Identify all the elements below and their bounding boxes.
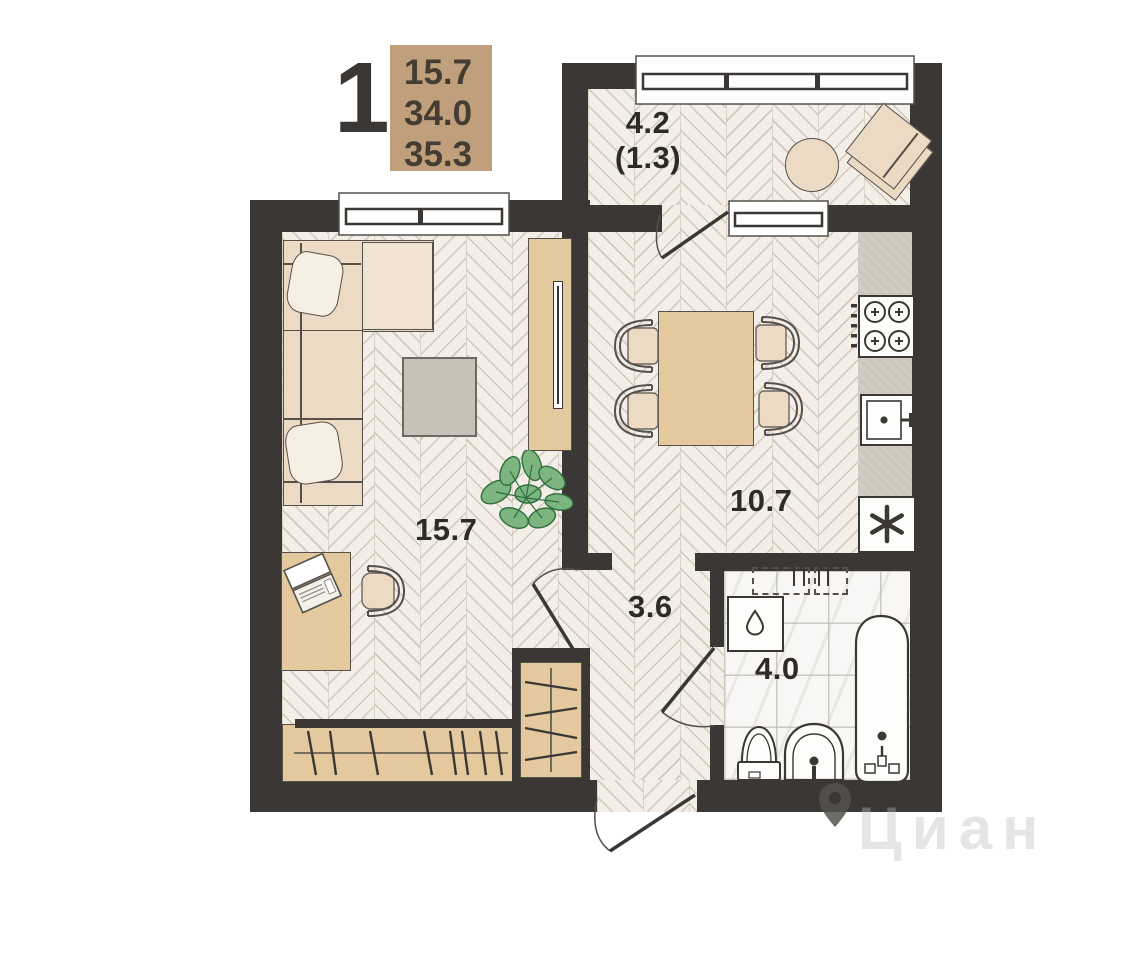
- wall-segment: [250, 200, 282, 812]
- wall-segment: [562, 63, 640, 89]
- hall-closet-hangers: [522, 666, 580, 774]
- coffee-table: [402, 357, 477, 437]
- washing-machine: [727, 596, 784, 652]
- wardrobe-door-track: [295, 719, 514, 728]
- balcony-door: [648, 203, 738, 268]
- bathroom-sink: [781, 718, 847, 782]
- balcony-area-reduced: (1.3): [583, 141, 713, 176]
- rooms-count: 1: [334, 48, 390, 148]
- wall-segment: [710, 725, 724, 782]
- towel-rail-mark: [793, 566, 795, 586]
- wardrobe-hangers: [292, 728, 510, 778]
- bathroom-label: 4.0: [755, 652, 800, 687]
- sofa-chaise: [362, 242, 433, 330]
- bathtub: [852, 614, 912, 786]
- dining-table: [658, 311, 754, 446]
- area-total-value: 35.3: [404, 134, 492, 175]
- towel-rail-mark: [803, 566, 805, 586]
- tv-screen-line: [557, 286, 559, 404]
- stove: [850, 295, 916, 358]
- tv-stand: [528, 238, 572, 451]
- watermark-pin-icon: [818, 782, 852, 828]
- living-room-window: [338, 192, 510, 236]
- tv: [553, 281, 563, 409]
- toilet: [736, 722, 782, 784]
- balcony-label: 4.2 (1.3): [583, 106, 713, 175]
- dining-chair: [612, 317, 662, 375]
- wall-segment: [250, 200, 348, 232]
- kitchen-label: 10.7: [730, 484, 792, 519]
- desk-chair: [350, 563, 408, 619]
- balcony-area: 4.2: [583, 106, 713, 141]
- wall-segment: [828, 205, 912, 232]
- wall-segment: [710, 571, 724, 647]
- dining-chair: [752, 314, 802, 372]
- sofa-cushion-line: [284, 418, 362, 420]
- entry-door: [588, 785, 706, 860]
- area-summary-box: 15.7 34.0 35.3: [390, 45, 492, 171]
- balcony-window: [635, 55, 915, 105]
- kitchen-sink: [860, 394, 916, 446]
- towel-rail-mark: [818, 566, 820, 586]
- fridge: [858, 496, 916, 553]
- living-room-label: 15.7: [415, 513, 477, 548]
- towel-rail-mark: [827, 566, 829, 586]
- kitchen-window: [728, 200, 829, 237]
- dining-chair: [612, 382, 662, 440]
- hallway-label: 3.6: [628, 590, 673, 625]
- watermark-text: Циан: [858, 794, 1048, 863]
- sofa-pillow: [283, 419, 346, 487]
- area-living-value: 15.7: [404, 52, 492, 93]
- plant: [476, 450, 576, 545]
- dining-chair: [755, 380, 805, 438]
- living-room-door: [516, 562, 588, 662]
- bath-overhead-unit: [752, 567, 810, 595]
- wall-segment: [588, 553, 612, 570]
- area-main-value: 34.0: [404, 93, 492, 134]
- balcony-table: [785, 138, 839, 192]
- floorplan-canvas: 1 15.7 34.0 35.3: [0, 0, 1147, 960]
- wall-segment: [250, 780, 597, 812]
- bathroom-door: [646, 640, 724, 732]
